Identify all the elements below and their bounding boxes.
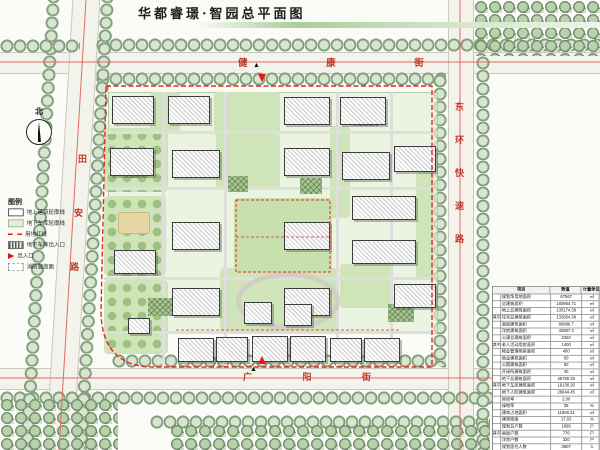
table-cell bbox=[493, 369, 501, 375]
street-name-top: 健 康 街 bbox=[238, 55, 462, 69]
building-footprint bbox=[284, 148, 330, 176]
table-row: 规划居住人数3507人 bbox=[493, 444, 599, 450]
table-row: 地上总建筑面积135174.38㎡ bbox=[493, 308, 599, 315]
table-cell: 物业管理用房面积 bbox=[501, 349, 551, 355]
title-underline bbox=[195, 22, 600, 28]
table-cell: 2320 bbox=[551, 335, 582, 341]
table-cell bbox=[493, 403, 501, 409]
table-cell: ㎡ bbox=[582, 410, 600, 416]
legend-item: 出入口 bbox=[8, 252, 94, 260]
table-row: 容积率2.00 bbox=[493, 397, 599, 404]
table-cell: 2.00 bbox=[551, 397, 582, 403]
table-cell: 高层户数 bbox=[501, 431, 551, 437]
north-label: 北 bbox=[24, 106, 54, 117]
table-header-row: 项目数值计量单位 bbox=[493, 287, 599, 295]
internal-path bbox=[104, 331, 434, 334]
table-cell: 规划净用地面积 bbox=[501, 294, 551, 300]
table-cell: ㎡ bbox=[582, 294, 600, 300]
building-footprint bbox=[112, 96, 154, 124]
building-outline-icon bbox=[8, 208, 24, 216]
street-trees bbox=[0, 38, 80, 54]
table-row: 规划净用地面积67567㎡ bbox=[493, 294, 599, 301]
internal-path bbox=[390, 92, 393, 366]
table-cell: 容积率 bbox=[501, 397, 551, 403]
fire-access-icon bbox=[8, 263, 24, 271]
table-row: 建筑密度17.03% bbox=[493, 417, 599, 424]
table-cell: 其中 bbox=[493, 342, 501, 348]
table-cell: 人 bbox=[582, 444, 600, 450]
internal-path bbox=[224, 92, 227, 366]
table-cell: 老人活动用房面积 bbox=[501, 342, 551, 348]
table-cell: 67567 bbox=[551, 294, 582, 300]
table-row: 开闭所建筑面积40㎡ bbox=[493, 369, 599, 376]
legend-item: 用地红线 bbox=[8, 230, 94, 238]
table-cell: ㎡ bbox=[582, 308, 600, 314]
building-footprint bbox=[284, 304, 312, 326]
table-cell: 3507 bbox=[551, 444, 582, 450]
page-title: 华都睿璟·智园总平面图 bbox=[138, 3, 306, 22]
table-row: 其中老人活动用房面积1400㎡ bbox=[493, 342, 599, 349]
entrance-arrow bbox=[258, 74, 266, 82]
table-cell: 19136.26 bbox=[551, 383, 582, 389]
table-row: 其中地下车库建筑面积19136.26㎡ bbox=[493, 383, 599, 390]
table-cell: 公建总建筑面积 bbox=[501, 335, 551, 341]
table-cell bbox=[493, 390, 501, 396]
building-footprint bbox=[394, 146, 436, 172]
table-row: 公建总建筑面积2320㎡ bbox=[493, 335, 599, 342]
internal-path bbox=[336, 92, 339, 366]
table-cell: % bbox=[582, 403, 600, 409]
building-footprint bbox=[114, 250, 156, 274]
legend-item-label: 出入口 bbox=[17, 252, 33, 260]
table-cell bbox=[493, 444, 501, 450]
legend-item-label: 地下车库轮廓线 bbox=[27, 219, 65, 227]
legend-item: 地下车库轮廓线 bbox=[8, 219, 94, 227]
table-cell: ㎡ bbox=[582, 369, 600, 375]
table-cell bbox=[493, 424, 501, 430]
table-cell: 135174.38 bbox=[551, 308, 582, 314]
table-cell: ㎡ bbox=[582, 356, 600, 362]
table-cell: 公厕建筑面积 bbox=[501, 362, 551, 368]
table-cell: 132854.38 bbox=[551, 315, 582, 321]
table-cell: ㎡ bbox=[582, 376, 600, 382]
table-row: 物业管理用房面积400㎡ bbox=[493, 349, 599, 356]
street-trees bbox=[96, 71, 446, 87]
table-cell: 40 bbox=[551, 369, 582, 375]
hatched-planting-area bbox=[228, 176, 248, 192]
table-cell bbox=[493, 301, 501, 307]
street-name-left-char: 田 bbox=[78, 152, 87, 165]
table-cell bbox=[493, 349, 501, 355]
building-footprint bbox=[330, 338, 362, 362]
table-cell: 开闭所建筑面积 bbox=[501, 369, 551, 375]
table-cell: 洋房户数 bbox=[501, 437, 551, 443]
table-cell: ㎡ bbox=[582, 301, 600, 307]
green-space bbox=[104, 280, 168, 354]
table-cell: ㎡ bbox=[582, 322, 600, 328]
table-cell bbox=[493, 322, 501, 328]
table-row: 地下人防建筑面积26644.45㎡ bbox=[493, 390, 599, 397]
legend-item-label: 地下车库出入口 bbox=[27, 241, 65, 249]
table-cell: 776 bbox=[551, 431, 582, 437]
table-cell bbox=[493, 335, 501, 341]
building-footprint bbox=[342, 152, 390, 180]
legend-item: 地下车库出入口 bbox=[8, 241, 94, 249]
internal-path bbox=[104, 131, 434, 134]
table-cell: 户 bbox=[582, 437, 600, 443]
table-cell: 其中 bbox=[493, 383, 501, 389]
table-row: 洋房建筑面积42867.3㎡ bbox=[493, 328, 599, 335]
table-cell: 42867.3 bbox=[551, 328, 582, 334]
building-footprint bbox=[172, 222, 220, 250]
legend-item: 地上建筑轮廓线 bbox=[8, 208, 94, 216]
table-cell: 11508.21 bbox=[551, 410, 582, 416]
table-cell: 180954.71 bbox=[551, 301, 582, 307]
table-cell: 绿地率 bbox=[501, 403, 551, 409]
street-name-bottom: 广 阳 街 bbox=[243, 370, 395, 383]
table-row: 总建筑面积180954.71㎡ bbox=[493, 301, 599, 308]
table-cell: 45780.33 bbox=[551, 376, 582, 382]
table-row: 绿地率35% bbox=[493, 403, 599, 410]
table-cell: ㎡ bbox=[582, 349, 600, 355]
internal-path bbox=[162, 92, 165, 366]
building-footprint bbox=[284, 97, 330, 125]
table-cell: 地下总建筑面积 bbox=[501, 376, 551, 382]
table-cell: 89986.7 bbox=[551, 322, 582, 328]
table-cell: 地下人防建筑面积 bbox=[501, 390, 551, 396]
table-cell: 17.03 bbox=[551, 417, 582, 423]
table-row: 规划总户数1096户 bbox=[493, 424, 599, 431]
indicator-table-body: 项目数值计量单位规划净用地面积67567㎡总建筑面积180954.71㎡地上总建… bbox=[492, 286, 599, 450]
building-footprint bbox=[290, 336, 326, 362]
corner-tree-cluster bbox=[0, 398, 118, 450]
hatched-planting-area bbox=[148, 298, 172, 316]
street-trees bbox=[475, 56, 491, 450]
entrance-arrow bbox=[258, 356, 266, 364]
table-cell: 26644.45 bbox=[551, 390, 582, 396]
table-cell: ㎡ bbox=[582, 390, 600, 396]
table-cell: 400 bbox=[551, 349, 582, 355]
table-cell: 规划居住人数 bbox=[501, 444, 551, 450]
table-cell: 计量单位 bbox=[581, 287, 600, 294]
building-footprint bbox=[284, 222, 330, 250]
playground bbox=[118, 212, 150, 234]
table-cell: 50 bbox=[551, 362, 582, 368]
table-cell: 规划总户数 bbox=[501, 424, 551, 430]
table-row: 其中高层户数776户 bbox=[493, 431, 599, 438]
table-row: 公厕建筑面积50㎡ bbox=[493, 362, 599, 369]
table-cell: 地下车库建筑面积 bbox=[501, 383, 551, 389]
table-row: 高层建筑面积89986.7㎡ bbox=[493, 322, 599, 329]
table-cell: 数值 bbox=[550, 287, 581, 294]
north-arrow: 北 bbox=[24, 106, 54, 145]
building-footprint bbox=[352, 240, 416, 264]
table-cell bbox=[493, 397, 501, 403]
legend: 图例 地上建筑轮廓线地下车库轮廓线用地红线地下车库出入口出入口消防登高面 bbox=[8, 196, 94, 274]
legend-item: 消防登高面 bbox=[8, 263, 94, 271]
table-row: 地下总建筑面积45780.33㎡ bbox=[493, 376, 599, 383]
street-name-right: 东环快速路 bbox=[453, 102, 466, 267]
table-cell bbox=[493, 410, 501, 416]
table-cell: % bbox=[582, 417, 600, 423]
legend-item-label: 用地红线 bbox=[25, 230, 47, 238]
table-cell: 1400 bbox=[551, 342, 582, 348]
legend-items: 地上建筑轮廓线地下车库轮廓线用地红线地下车库出入口出入口消防登高面 bbox=[8, 208, 94, 270]
table-cell bbox=[493, 294, 501, 300]
compass-needle bbox=[37, 122, 41, 142]
table-cell bbox=[493, 308, 501, 314]
table-cell bbox=[493, 437, 501, 443]
table-cell bbox=[493, 417, 501, 423]
building-footprint bbox=[244, 302, 272, 324]
table-cell: 其中 bbox=[493, 431, 501, 437]
table-cell: ㎡ bbox=[582, 315, 600, 321]
table-cell bbox=[493, 362, 501, 368]
table-cell: 建筑密度 bbox=[501, 417, 551, 423]
building-footprint bbox=[168, 96, 210, 124]
garage-entrance-icon bbox=[8, 241, 24, 249]
table-cell: 户 bbox=[582, 424, 600, 430]
table-cell: 其中 bbox=[493, 315, 501, 321]
legend-title: 图例 bbox=[8, 196, 94, 206]
corner-tree-cluster bbox=[170, 424, 490, 450]
building-footprint bbox=[352, 196, 416, 220]
table-cell bbox=[582, 397, 600, 403]
table-cell: 户 bbox=[582, 431, 600, 437]
table-cell: 项目 bbox=[493, 287, 551, 294]
table-row: 建筑占地面积11508.21㎡ bbox=[493, 410, 599, 417]
corner-tree-cluster bbox=[474, 0, 600, 56]
entrance-arrow-icon bbox=[8, 253, 14, 259]
site-plan-canvas: ▲ ▲ 华都睿璟·智园总平面图 健 康 街 广 阳 街 东环快速路 田 安 路 … bbox=[0, 0, 600, 450]
hatched-planting-area bbox=[300, 178, 322, 194]
table-cell: ㎡ bbox=[582, 383, 600, 389]
building-footprint bbox=[340, 97, 386, 125]
legend-item-label: 地上建筑轮廓线 bbox=[27, 208, 65, 216]
table-cell: ㎡ bbox=[582, 342, 600, 348]
table-cell: 商业建筑面积 bbox=[501, 356, 551, 362]
internal-path bbox=[104, 187, 434, 190]
garage-outline-icon bbox=[8, 219, 24, 227]
legend-item-label: 消防登高面 bbox=[27, 263, 54, 271]
table-row: 洋房户数320户 bbox=[493, 437, 599, 444]
building-footprint bbox=[364, 338, 400, 362]
table-cell: ㎡ bbox=[582, 362, 600, 368]
table-row: 商业建筑面积50㎡ bbox=[493, 356, 599, 363]
building-footprint bbox=[110, 148, 154, 176]
table-cell: 35 bbox=[551, 403, 582, 409]
compass-icon bbox=[26, 119, 52, 145]
table-cell: 地上总建筑面积 bbox=[501, 308, 551, 314]
green-space bbox=[340, 264, 392, 308]
service-building bbox=[128, 318, 150, 334]
table-cell: 洋房建筑面积 bbox=[501, 328, 551, 334]
table-cell bbox=[493, 328, 501, 334]
table-cell: ㎡ bbox=[582, 328, 600, 334]
building-footprint bbox=[178, 338, 214, 362]
table-cell: 320 bbox=[551, 437, 582, 443]
red-line-icon bbox=[8, 233, 22, 235]
indicator-table: 项目数值计量单位规划净用地面积67567㎡总建筑面积180954.71㎡地上总建… bbox=[492, 286, 598, 446]
table-cell: 1096 bbox=[551, 424, 582, 430]
table-cell bbox=[493, 376, 501, 382]
table-cell: 高层建筑面积 bbox=[501, 322, 551, 328]
table-cell: ㎡ bbox=[582, 335, 600, 341]
table-cell bbox=[493, 356, 501, 362]
table-row: 其中住宅总建筑面积132854.38㎡ bbox=[493, 315, 599, 322]
building-footprint bbox=[394, 284, 436, 308]
building-footprint bbox=[172, 150, 220, 178]
table-cell: 建筑占地面积 bbox=[501, 410, 551, 416]
table-cell: 总建筑面积 bbox=[501, 301, 551, 307]
building-footprint bbox=[172, 288, 220, 316]
table-cell: 50 bbox=[551, 356, 582, 362]
table-cell: 住宅总建筑面积 bbox=[501, 315, 551, 321]
building-footprint bbox=[216, 337, 248, 362]
